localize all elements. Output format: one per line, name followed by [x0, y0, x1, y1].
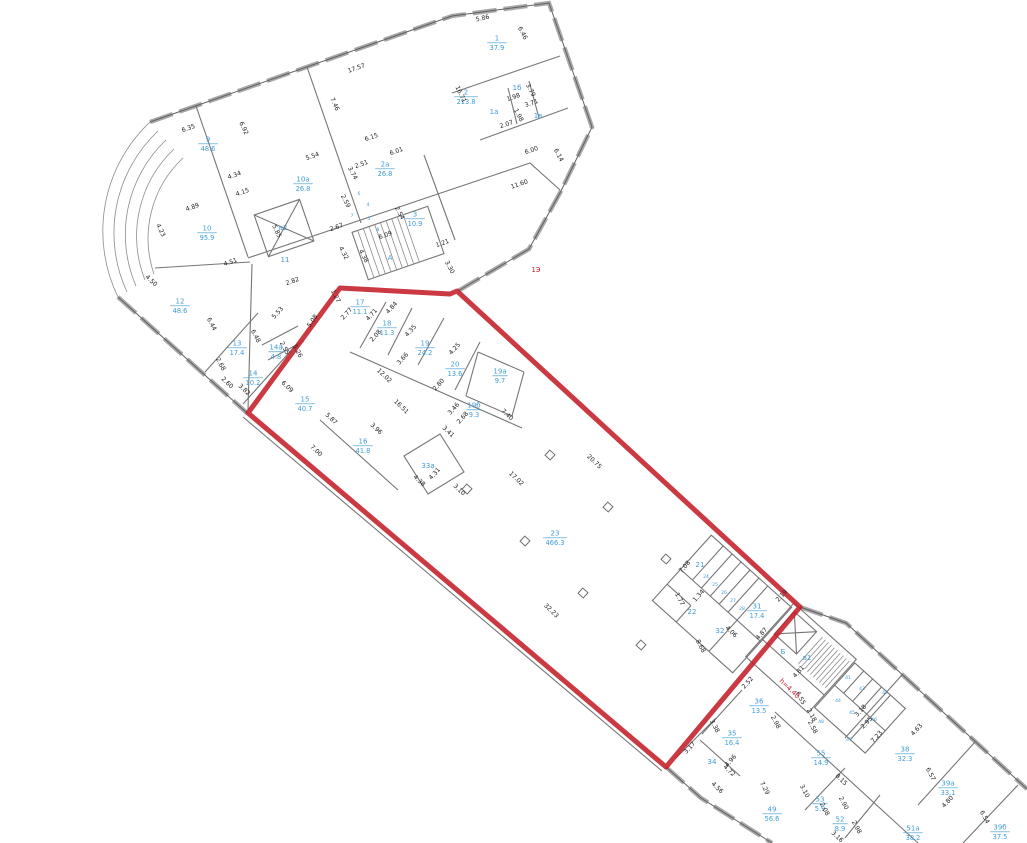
room-label: 33а: [421, 462, 434, 470]
room-label: 1248.6: [170, 298, 190, 316]
room-number: 7: [351, 213, 354, 219]
dimension-label: 5.86: [475, 14, 490, 24]
dimension-label: 4.50: [144, 274, 159, 289]
room-label: 23466.3: [543, 530, 567, 548]
room-area: 26.8: [378, 170, 393, 178]
room-label: 1а: [490, 108, 499, 116]
room-label: 51а38.2: [903, 825, 923, 843]
dimension-label: 4.84: [385, 300, 399, 315]
room-label: 27: [730, 598, 736, 604]
room-number: 49: [768, 806, 777, 814]
dimension-label: 5.53: [271, 305, 285, 320]
dimension-label: 1.21: [435, 238, 450, 249]
room-labels-layer: 137.91б1а1в2213.82а26.8310.9948.610а26.8…: [170, 35, 1010, 843]
room-label: 1641.8: [353, 438, 373, 456]
room-label: 6: [358, 191, 361, 197]
room-area: 10.9: [408, 220, 423, 228]
room-label: 1410.2: [243, 370, 263, 388]
room-number: 14: [249, 370, 258, 378]
room-area: 466.3: [546, 539, 565, 547]
room-number: 1в: [534, 112, 543, 120]
room-number: 23: [551, 530, 560, 538]
room-number: 17: [356, 299, 365, 307]
room-label: 4956.6: [762, 806, 782, 824]
room-label: 3516.4: [722, 730, 742, 748]
room-label: 22: [688, 608, 697, 616]
dimension-label: 32.23: [542, 602, 560, 619]
dimension-label: 3.30: [443, 260, 456, 276]
room-area: 14.9: [814, 759, 829, 767]
floor-plan-page: 137.91б1а1в2213.82а26.8310.9948.610а26.8…: [0, 0, 1027, 843]
dimension-label: 3.66: [396, 351, 410, 366]
room-label: в1: [803, 654, 812, 662]
room-area: 48.6: [173, 307, 188, 315]
dimension-label: 4.32: [337, 246, 350, 262]
room-label: 1711.1: [350, 299, 370, 317]
dimension-label: 2.98: [850, 820, 863, 836]
dimension-label: 4.89: [185, 202, 200, 213]
dimension-label: 3.71: [524, 98, 539, 109]
dimension-label: 7.46: [328, 97, 340, 113]
dimension-label: 11.60: [510, 178, 529, 190]
room-label: 11: [281, 256, 290, 264]
interior-walls: [155, 56, 1018, 843]
room-number: 26: [721, 590, 727, 596]
dimension-labels-layer: 5.866.4617.577.4616.711.983.793.711.982.…: [144, 14, 991, 843]
selected-area-boundary: [248, 288, 800, 767]
dimension-label: 8.68: [694, 639, 707, 655]
dimension-label: 2.82: [285, 276, 300, 287]
room-label: 48: [818, 719, 824, 725]
room-number: 16: [359, 438, 368, 446]
dimension-label: 6.15: [364, 132, 379, 143]
room-number: 12: [176, 298, 185, 306]
room-number: 1: [495, 35, 499, 43]
red-annotation: 1Э: [531, 266, 540, 274]
room-number: 42: [882, 690, 888, 696]
room-number: 10: [203, 225, 212, 233]
room-label: 21: [696, 561, 705, 569]
room-label: 3832.3: [895, 746, 915, 764]
dimension-label: 6.01: [389, 146, 404, 157]
room-number: 19б: [467, 402, 480, 410]
room-number: в1: [803, 654, 812, 662]
dimension-label: 4.38: [357, 249, 370, 265]
room-label: 42: [882, 690, 888, 696]
dimension-label: 1.98: [512, 108, 525, 124]
room-label: 1317.4: [227, 340, 247, 358]
dimension-label: 2.68: [214, 357, 227, 373]
dimension-label: 4.25: [448, 341, 462, 356]
room-area: 13.5: [752, 707, 767, 715]
dimension-label: 4.23: [154, 223, 166, 239]
room-number: 22: [688, 608, 697, 616]
dimension-label: 6.09: [280, 380, 295, 395]
room-number: 39а: [941, 780, 954, 788]
room-label: 5514.9: [811, 750, 831, 768]
dimension-label: 6.44: [205, 317, 218, 333]
room-number: 3: [413, 211, 417, 219]
room-label: 25: [712, 582, 718, 588]
room-number: 11: [281, 256, 290, 264]
dimension-label: 4.63: [910, 722, 924, 737]
room-label: 32: [716, 627, 725, 635]
dimension-label: 2.54: [393, 206, 406, 222]
room-label: Б: [781, 648, 786, 656]
room-area: 17.4: [750, 612, 765, 620]
dimension-label: 6.92: [237, 121, 249, 137]
dimension-label: 2.51: [354, 159, 369, 170]
dimension-label: 4.72: [722, 764, 737, 779]
room-area: 13.6: [448, 370, 463, 378]
dimension-label: 6.57: [924, 767, 937, 783]
room-number: 19а: [493, 368, 506, 376]
exterior-walls: [118, 3, 1027, 843]
room-number: 43: [859, 686, 865, 692]
room-area: 10.2: [246, 379, 261, 387]
room-number: 31: [753, 603, 762, 611]
wc-cluster-central: [652, 535, 791, 673]
dimension-label: 3.41: [441, 425, 456, 440]
dimension-label: 7.08: [678, 559, 692, 574]
dimension-label: 4.56: [710, 781, 725, 796]
room-number: 1б: [513, 84, 522, 92]
room-area: 48.6: [201, 145, 216, 153]
room-label: 3613.5: [749, 698, 769, 716]
room-label: 948.6: [198, 136, 218, 154]
room-label: 4: [367, 202, 370, 208]
room-number: 55: [817, 750, 826, 758]
room-label: 8: [377, 227, 380, 233]
dimension-label: 2.67: [329, 222, 344, 233]
room-number: 44: [835, 698, 841, 704]
room-number: 32: [716, 627, 725, 635]
dimension-label: 4.15: [235, 187, 250, 198]
room-area: 9.7: [495, 377, 506, 385]
room-label: 137.9: [487, 35, 507, 53]
dimension-label: 1.98: [506, 92, 521, 103]
room-area: 24.2: [418, 349, 433, 357]
room-label: 43: [859, 686, 865, 692]
dimension-label: 3.46: [447, 401, 461, 416]
room-number: 4: [367, 202, 370, 208]
dimension-label: 6.09: [378, 230, 393, 241]
room-number: 41: [845, 675, 851, 681]
room-number: 9: [206, 136, 210, 144]
room-area: 9.3: [469, 411, 480, 419]
room-number: 8: [377, 227, 380, 233]
dimension-label: 4.38: [412, 474, 427, 489]
dimension-label: 2.58: [806, 720, 819, 736]
room-label: 1б: [513, 84, 522, 92]
room-label: 34: [708, 758, 717, 766]
room-area: 38.2: [906, 834, 921, 842]
room-label: 7: [351, 213, 354, 219]
dimension-label: 7.40: [500, 408, 515, 423]
room-area: 16.4: [725, 739, 740, 747]
room-number: 28: [739, 606, 745, 612]
room-label: 26: [721, 590, 727, 596]
room-number: 19: [421, 340, 430, 348]
room-area: 32.3: [898, 755, 913, 763]
room-number: 20: [451, 361, 460, 369]
room-number: 21: [696, 561, 705, 569]
dimension-label: 3.38: [708, 719, 721, 735]
dimension-label: 5.87: [324, 412, 339, 427]
dimension-label: 3.18: [854, 703, 868, 718]
room-number: 51а: [906, 825, 919, 833]
dimension-label: 6.46: [516, 26, 529, 42]
dimension-label: 4.34: [227, 170, 242, 181]
dimension-label: 1.77: [673, 592, 686, 608]
room-area: 40.7: [298, 405, 313, 413]
room-label: 19а9.7: [492, 368, 507, 386]
dimension-label: 5.54: [305, 151, 320, 162]
room-label: 1540.7: [295, 396, 315, 414]
dimension-label: 4.51: [223, 257, 238, 268]
curved-facade-arcs: [103, 122, 183, 297]
room-label: 1в: [534, 112, 543, 120]
dimension-label: 2.90: [837, 796, 850, 812]
room-label: 2а26.8: [375, 161, 395, 179]
dimension-label: 4.35: [404, 323, 418, 338]
room-label: 39а33.1: [938, 780, 958, 798]
room-area: 56.6: [765, 815, 780, 823]
room-label: 47: [846, 737, 852, 743]
dimension-label: 17.57: [347, 62, 366, 74]
room-label: 1924.2: [415, 340, 435, 358]
room-label: 39б37.5: [990, 824, 1010, 842]
room-number: 38: [901, 746, 910, 754]
room-number: 27: [730, 598, 736, 604]
room-label: 10а26.8: [293, 176, 313, 194]
dimension-label: 3.10: [798, 784, 811, 800]
room-number: 39б: [993, 824, 1006, 832]
room-number: А: [388, 254, 393, 262]
dimension-label: 7.29: [758, 781, 771, 797]
room-number: 5: [368, 216, 371, 222]
room-label: 44: [835, 698, 841, 704]
dimension-label: 20.75: [585, 453, 603, 470]
dimension-label: 7.00: [309, 444, 324, 459]
room-label: 5: [368, 216, 371, 222]
dimension-label: 3.10: [452, 483, 467, 498]
dimension-label: 6.54: [978, 810, 991, 826]
room-number: 48: [818, 719, 824, 725]
room-label: 28: [739, 606, 745, 612]
room-number: 33а: [421, 462, 434, 470]
room-number: 15: [301, 396, 310, 404]
room-area: 37.5: [993, 833, 1008, 841]
room-area: 26.8: [296, 185, 311, 193]
room-number: 2а: [381, 161, 390, 169]
room-number: 13: [233, 340, 242, 348]
dimension-label: 2.59: [339, 194, 352, 210]
room-area: 17.4: [230, 349, 245, 357]
dimension-label: 17.02: [507, 470, 525, 487]
room-number: 1а: [490, 108, 499, 116]
room-label: 1095.9: [197, 225, 217, 243]
dimension-label: 6.14: [552, 148, 565, 164]
room-label: 2013.6: [445, 361, 465, 379]
room-number: Б: [781, 648, 786, 656]
dimension-label: 16.51: [392, 398, 410, 415]
dimension-label: 6.48: [249, 329, 262, 345]
dimension-label: 6.00: [524, 145, 539, 156]
dimension-label: 3.79: [524, 83, 537, 99]
room-number: 24: [703, 574, 709, 580]
room-label: А: [388, 254, 393, 262]
room-area: 37.9: [490, 44, 505, 52]
room-number: 18: [383, 320, 392, 328]
room-area: 41.8: [356, 447, 371, 455]
dimension-label: 6.35: [181, 123, 196, 134]
room-label: 24: [703, 574, 709, 580]
dimension-label: 3.96: [369, 422, 384, 437]
room-area: 11.1: [353, 308, 368, 316]
room-label: 41: [845, 675, 851, 681]
dimension-label: 2.80: [432, 377, 446, 392]
room-number: 6: [358, 191, 361, 197]
floor-plan-drawing: 137.91б1а1в2213.82а26.8310.9948.610а26.8…: [0, 0, 1027, 843]
room-area: 95.9: [200, 234, 215, 242]
room-number: 52: [836, 816, 845, 824]
room-number: 36: [755, 698, 764, 706]
dimension-label: 7.23: [870, 729, 884, 744]
room-number: 47: [846, 737, 852, 743]
room-number: 10а: [296, 176, 309, 184]
dimension-label: 8.15: [834, 773, 849, 788]
room-number: 34: [708, 758, 717, 766]
room-area: 4.8: [271, 353, 282, 361]
room-number: 25: [712, 582, 718, 588]
room-number: 35: [728, 730, 737, 738]
